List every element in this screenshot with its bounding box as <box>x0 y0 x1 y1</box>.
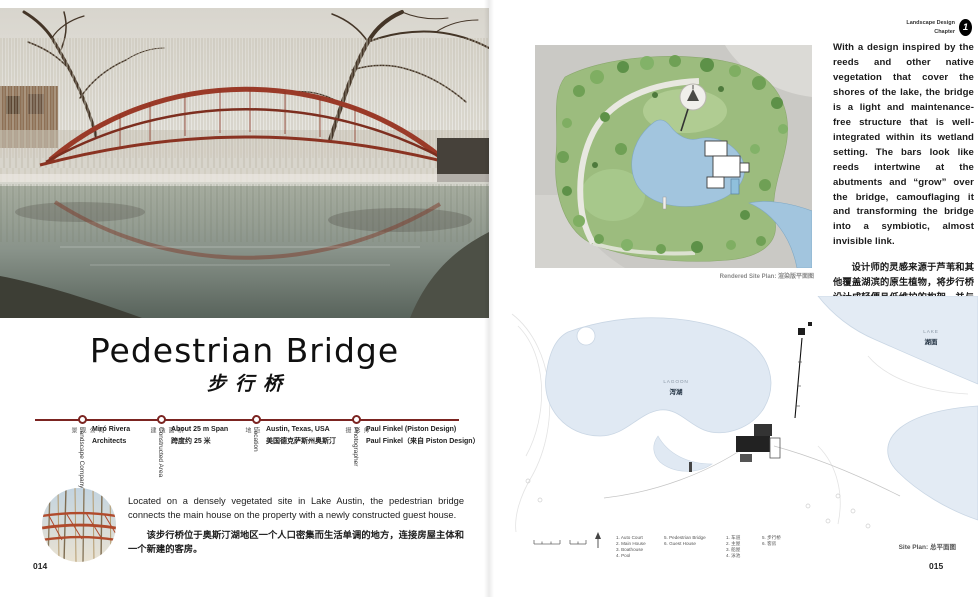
lagoon-label-zh: 泻湖 <box>648 386 704 396</box>
rendered-plan-caption: Rendered Site Plan: 渲染版平面图 <box>614 271 814 280</box>
bridge-detail-art <box>42 488 116 562</box>
timeline-dot <box>252 415 261 424</box>
lagoon-label-en: LAGOON <box>648 380 704 385</box>
timeline-dot <box>157 415 166 424</box>
timeline-label-en: Location <box>252 427 259 452</box>
site-plan-caption: Site Plan: 总平面图 <box>899 541 956 551</box>
north-arrow-icon <box>592 531 604 549</box>
timeline-line <box>35 419 459 421</box>
legend-item: 6. 客房 <box>762 541 781 547</box>
timeline-value: Miró Rivera Architects <box>92 424 150 448</box>
timeline-value: About 25 m Span 跨度约 25 米 <box>171 424 228 448</box>
chapter-tag-line1: Landscape Design <box>906 19 955 27</box>
timeline-value-en: Miró Rivera Architects <box>92 424 150 448</box>
intro-block: Located on a densely vegetated site in L… <box>42 486 464 570</box>
page-number-right: 015 <box>929 561 943 571</box>
project-info-timeline: 景观公司 Landscape Company Miró Rivera Archi… <box>35 413 459 491</box>
timeline-label-en: Landscape Company <box>78 427 85 488</box>
rendered-site-plan-art <box>535 45 812 268</box>
chapter-number-badge: 1 <box>959 19 972 36</box>
scale-bar-icon <box>532 535 590 549</box>
page-title-zh: 步行桥 <box>0 369 489 396</box>
lake-label-zh: 湖面 <box>908 336 954 346</box>
timeline-value-zh: Paul Finkel（来自 Piston Design） <box>366 436 480 448</box>
rendered-site-plan <box>535 45 812 268</box>
timeline-label-en: Photographer <box>352 427 359 466</box>
timeline-value-en: Paul Finkel (Piston Design) <box>366 424 480 436</box>
site-plan: LAGOON 泻湖 LAKE 湖面 <box>508 296 978 554</box>
timeline-dot <box>78 415 87 424</box>
page-title: Pedestrian Bridge <box>0 331 489 370</box>
lake-label-en: LAKE <box>908 330 954 335</box>
bridge-detail-photo <box>42 488 116 562</box>
timeline-value-en: Austin, Texas, USA <box>266 424 336 436</box>
intro-paragraph-zh: 该步行桥位于奥斯汀湖地区一个人口密集而生活单调的地方，连接房屋主体和一个新建的客… <box>128 529 464 557</box>
chapter-tag-text: Landscape Design Chapter <box>906 19 955 36</box>
legend-col-en-1: 1. Auto Court 2. Main House 3. Boathouse… <box>616 535 646 559</box>
chapter-tag-line2: Chapter <box>906 28 955 36</box>
timeline-label-en: Constructed Area <box>157 427 164 477</box>
chapter-tag: Landscape Design Chapter 1 <box>872 19 972 36</box>
bridge-photo-art <box>0 8 489 318</box>
legend-item: 6. Guest House <box>664 541 706 547</box>
timeline-value: Austin, Texas, USA 美国德克萨斯州奥斯汀 <box>266 424 336 448</box>
book-spread: Pedestrian Bridge 步行桥 景观公司 Landscape Com… <box>0 0 978 597</box>
legend-item: 4. Pool <box>616 553 646 559</box>
timeline-value-zh: 跨度约 25 米 <box>171 436 228 448</box>
page-number-left: 014 <box>33 561 47 571</box>
bridge-photo <box>0 8 489 318</box>
lake-label: LAKE 湖面 <box>908 330 954 346</box>
lagoon-label: LAGOON 泻湖 <box>648 380 704 396</box>
legend-col-zh-1: 1. 车道 2. 主屋 3. 船屋 4. 泳池 <box>726 535 740 559</box>
intro-text: Located on a densely vegetated site in L… <box>128 495 464 557</box>
legend-col-en-2: 5. Pedestrian Bridge 6. Guest House <box>664 535 706 547</box>
timeline-dot <box>352 415 361 424</box>
legend-col-zh-2: 5. 步行桥 6. 客房 <box>762 535 781 547</box>
timeline-value-zh: 美国德克萨斯州奥斯汀 <box>266 436 336 448</box>
timeline-value: Paul Finkel (Piston Design) Paul Finkel（… <box>366 424 480 448</box>
timeline-value-en: About 25 m Span <box>171 424 228 436</box>
description-paragraph-en: With a design inspired by the reeds and … <box>833 41 974 250</box>
site-plan-legend: 1. Auto Court 2. Main House 3. Boathouse… <box>528 530 858 554</box>
intro-paragraph-en: Located on a densely vegetated site in L… <box>128 495 464 523</box>
legend-item: 4. 泳池 <box>726 553 740 559</box>
